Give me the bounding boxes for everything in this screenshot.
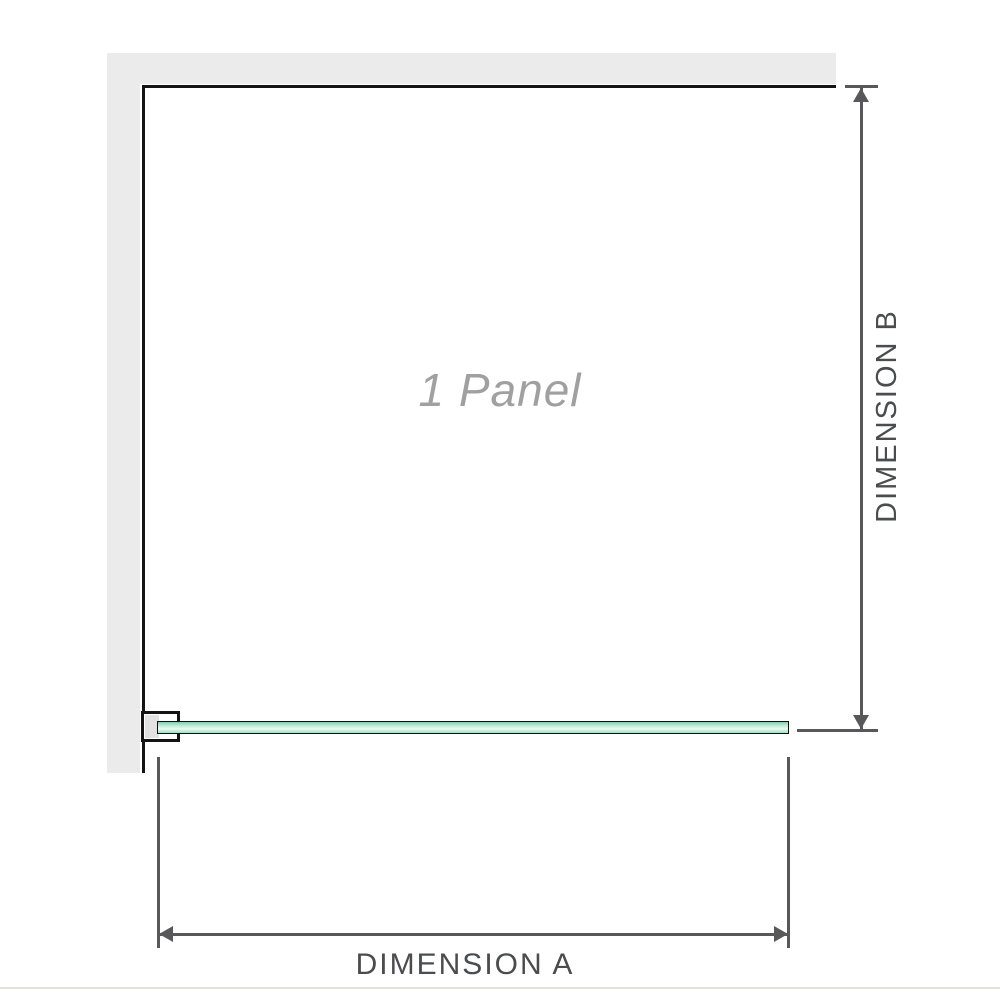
panel-left-edge [142, 85, 145, 773]
glass-panel-bar [157, 721, 789, 734]
panel-dimension-diagram: 1 Panel DIMENSION B DIMENSION A [0, 0, 1000, 1000]
dimension-b-line [860, 88, 863, 732]
panel-count-label: 1 Panel [330, 363, 670, 417]
dimension-b-label: DIMENSION B [871, 266, 901, 566]
dimension-b-arrow-up-icon [853, 88, 869, 102]
dimension-a-right-extension [787, 757, 790, 948]
dimension-a-arrow-right-icon [774, 926, 788, 942]
dimension-a-left-extension [157, 757, 160, 948]
dimension-b-arrow-down-icon [853, 715, 869, 729]
wall-top-band [107, 53, 836, 84]
dimension-a-label: DIMENSION A [315, 948, 615, 982]
wall-left-band [107, 53, 140, 773]
panel-top-edge [142, 85, 836, 88]
dimension-b-bottom-tick [797, 729, 878, 732]
image-bottom-edge [0, 987, 1000, 989]
dimension-a-line [160, 933, 788, 936]
dimension-a-arrow-left-icon [159, 926, 173, 942]
